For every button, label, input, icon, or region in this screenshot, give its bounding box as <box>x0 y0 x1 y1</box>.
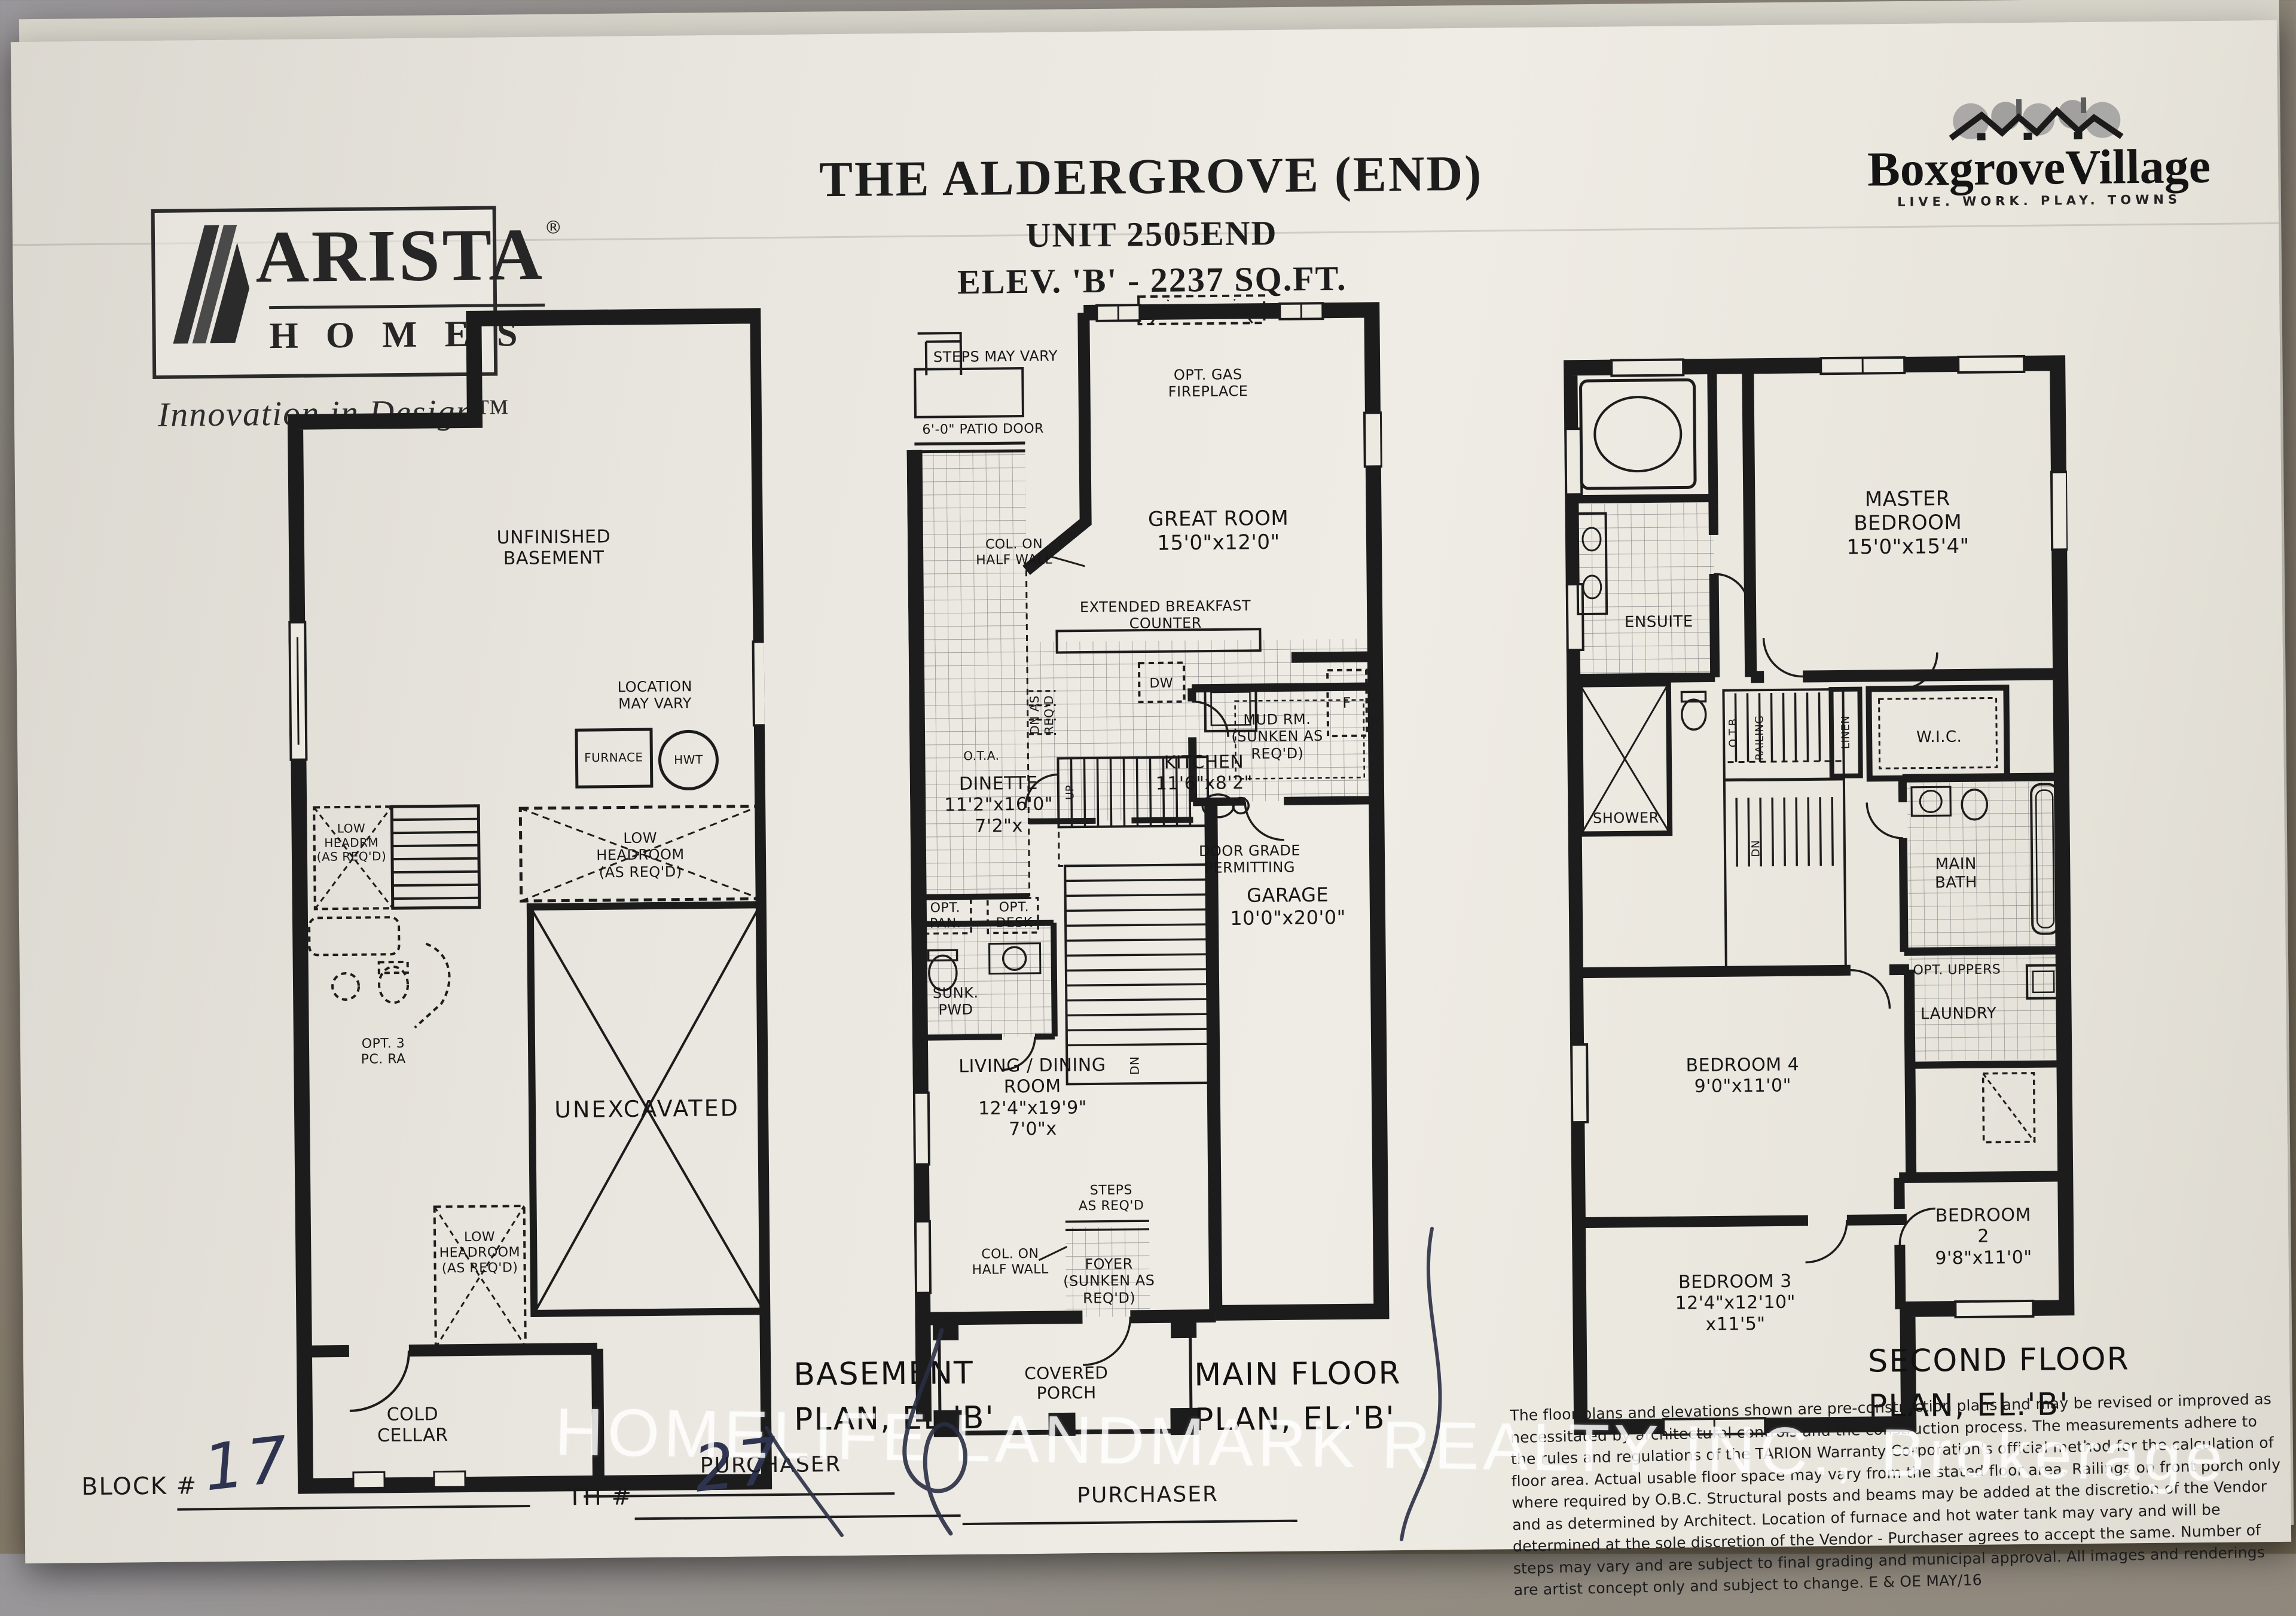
second-laundry-label: LAUNDRY <box>1921 1004 1996 1024</box>
boxgrove-village-logo: BoxgroveVillage LIVE. WORK. PLAY. TOWNS <box>1867 91 2211 210</box>
main-ota-label: O.T.A. <box>963 749 999 763</box>
main-dn-label: DN <box>1128 1056 1142 1075</box>
basement-cold-cellar-label: COLD CELLAR <box>377 1404 448 1447</box>
main-fridge-label: F <box>1342 695 1351 711</box>
th-underline <box>635 1514 961 1520</box>
main-dn-as-reqd-label: DN AS REQ'D <box>1028 695 1057 735</box>
main-great-room-label: GREAT ROOM 15'0"x12'0" <box>1148 506 1289 555</box>
basement-unfinished-label: UNFINISHED BASEMENT <box>496 526 610 570</box>
basement-floorplan-drawing <box>285 307 772 1498</box>
block-number-label: BLOCK # <box>81 1472 198 1501</box>
photographed-floorplan-document: { "header": { "arista_name": "ARISTA", "… <box>0 0 2296 1554</box>
second-wic-label: W.I.C. <box>1916 728 1962 747</box>
basement-location-label: LOCATION MAY VARY <box>617 678 692 713</box>
second-main-bath-label: MAIN BATH <box>1935 855 1978 892</box>
second-floorplan-drawing <box>1564 352 2076 1442</box>
basement-furnace-label: FURNACE <box>584 750 643 765</box>
second-ensuite-label: ENSUITE <box>1625 613 1693 632</box>
basement-unexcavated-label: UNEXCAVATED <box>554 1095 740 1123</box>
main-steps-as-reqd-label: STEPS AS REQ'D <box>1079 1183 1144 1214</box>
arista-logo-mark-icon <box>166 220 257 346</box>
main-fireplace-label: OPT. GAS FIREPLACE <box>1168 366 1248 401</box>
second-dn-label: DN <box>1750 840 1763 857</box>
second-railing-label: RAILING <box>1753 715 1766 760</box>
registered-mark-icon: ® <box>544 217 562 238</box>
boxgrove-name: BoxgroveVillage <box>1867 142 2211 194</box>
basement-low-headrm-label: LOW HEADRM (AS REQ'D) <box>316 821 386 864</box>
second-opt-uppers-label: OPT. UPPERS <box>1913 962 2001 978</box>
basement-opt-3pc-label: OPT. 3 PC. RA <box>361 1036 406 1068</box>
purchaser-underline-2 <box>963 1520 1297 1525</box>
block-number-handwritten: 17 <box>200 1422 295 1505</box>
purchaser-label-2: PURCHASER <box>1077 1482 1219 1508</box>
second-bedroom2-label: BEDROOM 2 9'8"x11'0" <box>1935 1205 2032 1269</box>
second-bedroom3-label: BEDROOM 3 12'4"x12'10" x11'5" <box>1675 1271 1796 1336</box>
main-dinette-label: DINETTE 11'2"x16'0" 7'2"x <box>944 772 1054 837</box>
basement-plan: UNFINISHED BASEMENT LOCATION MAY VARY FU… <box>285 307 772 1498</box>
basement-hwt-label: HWT <box>674 753 703 767</box>
main-sunk-pwd-label: SUNK. PWD <box>933 984 979 1018</box>
main-up-label: UP <box>1064 785 1076 800</box>
main-living-label: LIVING / DINING ROOM 12'4"x19'9" 7'0"x <box>958 1055 1107 1141</box>
main-opt-desk-label: OPT. DESK <box>996 900 1033 931</box>
main-garage-label: GARAGE 10'0"x20'0" <box>1230 884 1346 930</box>
arista-logo-text: ARISTA <box>255 213 545 298</box>
second-linen-label: LINEN <box>1839 716 1852 749</box>
unit-number: UNIT 2505END <box>820 211 1484 258</box>
main-col-half-wall-top-label: COL. ON HALF WALL <box>976 537 1053 569</box>
basement-low-headroom-cold-label: LOW HEADROOM (AS REQ'D) <box>439 1229 520 1276</box>
plan-title-block: THE ALDERGROVE (END) UNIT 2505END ELEV. … <box>819 145 1485 304</box>
main-opt-pan-label: OPT. PAN. <box>930 900 961 931</box>
main-covered-porch-label: COVERED PORCH <box>1024 1363 1109 1403</box>
main-ext-breakfast-label: EXTENDED BREAKFAST COUNTER <box>1080 597 1251 633</box>
main-mud-rm-label: MUD RM. (SUNKEN AS REQ'D) <box>1223 711 1332 763</box>
boxgrove-roofline-icon <box>1940 92 2138 145</box>
model-name-title: THE ALDERGROVE (END) <box>819 145 1483 209</box>
main-steps-may-vary-label: STEPS MAY VARY <box>933 347 1058 365</box>
main-foyer-label: FOYER (SUNKEN AS REQ'D) <box>1063 1255 1155 1307</box>
second-master-label: MASTER BEDROOM 15'0"x15'4" <box>1828 486 1988 560</box>
second-floor-plan: MASTER BEDROOM 15'0"x15'4" ENSUITE SHOWE… <box>1564 352 2076 1442</box>
floorplan-sheet: ARISTA® HOMES Innovation in Design™ THE … <box>11 20 2291 1563</box>
boxgrove-tagline: LIVE. WORK. PLAY. TOWNS <box>1868 192 2211 210</box>
block-underline <box>177 1505 530 1511</box>
main-door-grade-label: DOOR GRADE PERMITTING <box>1199 842 1300 876</box>
main-floor-plan: STEPS MAY VARY OPT. GAS FIREPLACE 6'-0" … <box>905 293 1391 1449</box>
basement-low-headroom-label: LOW HEADROOM (AS REQ'D) <box>596 829 685 881</box>
main-col-half-wall-bottom-label: COL. ON HALF WALL <box>972 1247 1049 1278</box>
second-shower-label: SHOWER <box>1593 809 1659 827</box>
second-otb-label: O.T.B. <box>1727 714 1740 747</box>
main-dw-label: DW <box>1149 676 1173 692</box>
main-patio-door-label: 6'-0" PATIO DOOR <box>922 421 1044 438</box>
second-bedroom4-label: BEDROOM 4 9'0"x11'0" <box>1686 1054 1799 1098</box>
